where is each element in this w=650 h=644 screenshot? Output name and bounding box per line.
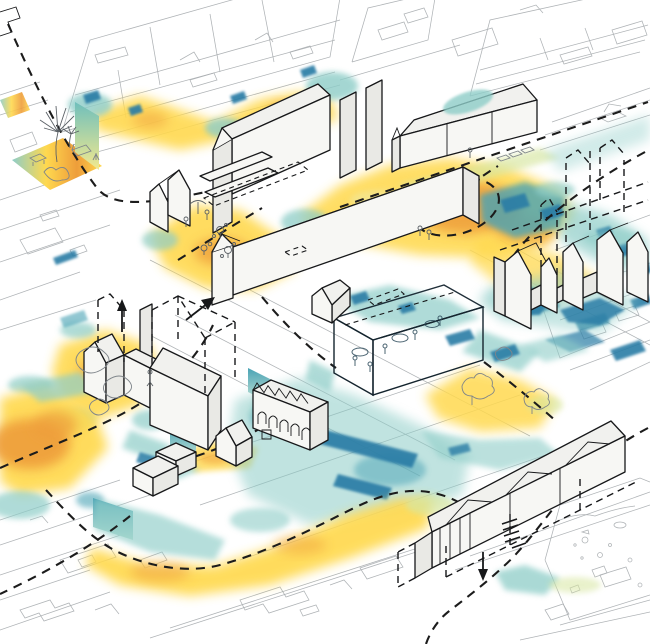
- urban-masterplan-diagram: [0, 0, 650, 644]
